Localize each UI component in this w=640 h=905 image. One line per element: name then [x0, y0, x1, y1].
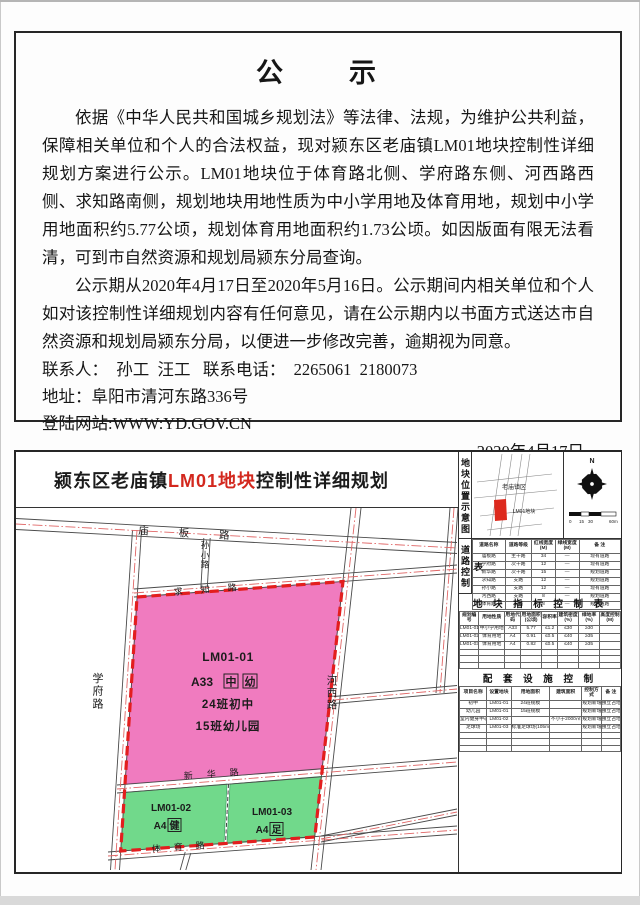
cell: 15班规模	[511, 708, 550, 716]
cell: 规划新增	[582, 716, 601, 724]
cell	[579, 662, 600, 669]
road-label-sunxiao: 孙小路	[201, 540, 210, 570]
cell	[600, 633, 621, 641]
cell: ≥35	[579, 641, 600, 649]
cell: 备 注	[579, 540, 620, 554]
cell: 用地代码	[505, 612, 521, 626]
cell: LM01-01	[460, 625, 479, 633]
cell	[600, 625, 621, 633]
compass-column: N 0 15 30	[563, 452, 621, 538]
cell: 红线宽度(M)	[532, 540, 556, 554]
scanned-notice-page: 公 示 依据《中华人民共和国城乡规划法》等法律、法规，为维护公共利益，保障相关单…	[0, 0, 640, 905]
cell	[558, 662, 579, 669]
scale-0: 0	[569, 519, 572, 524]
cell	[550, 700, 582, 708]
table-row: 庙板路主干路34—现有道路	[473, 553, 621, 561]
cell: 求知路	[473, 577, 506, 585]
road-control-section: 道路控制表 道路名称道路等级红线宽度(M)绿线宽度(M)备 注庙板路主干路34—…	[459, 539, 621, 594]
sidebar-empty-area	[459, 752, 621, 866]
cell: 12	[532, 561, 556, 569]
cell: 5.77	[521, 625, 542, 633]
cell: 0.91	[521, 633, 542, 641]
road-label-hexi: 河西路	[327, 675, 338, 711]
cell: ≤0.5	[542, 633, 558, 641]
cell: —	[555, 585, 579, 593]
cell	[542, 662, 558, 669]
cell: 规划新增	[582, 708, 601, 716]
location-inset-map: 老庙镇区 LM01地块	[472, 452, 563, 538]
parcel2-code: LM01-02	[151, 803, 191, 814]
notice-address-line: 地址：阜阳市清河东路336号	[42, 383, 594, 410]
cell: 12	[532, 585, 556, 593]
cell	[505, 662, 521, 669]
cell: 12	[532, 577, 556, 585]
parcel1-tag1: 中	[226, 675, 237, 689]
table-row: LM01-03体育用地A40.82≤0.5≤40≥35	[460, 641, 621, 649]
indicator-table-title: 地 块 指 标 控 制 表	[459, 594, 621, 611]
cell: 新华路	[473, 569, 506, 577]
cell	[601, 745, 620, 752]
cell	[487, 745, 511, 752]
cell: 中小学用地	[479, 625, 505, 633]
cell	[511, 716, 550, 724]
parcel1-line3: 24班初中	[202, 697, 254, 711]
cell: 初中	[460, 700, 487, 708]
cell: ≤1.2	[542, 625, 558, 633]
plan-sidebar: 地块位置示意图 老庙镇区 LM01地块	[458, 452, 621, 872]
cell: 幼儿园	[460, 708, 487, 716]
table-row: 室内健身中心LM01-02不小于2000㎡规划新增独立占地	[460, 716, 621, 724]
parcel3-tag: 足	[272, 824, 283, 836]
road-label-miaoban: 庙板路	[138, 524, 260, 544]
cell: 高度控制(M)	[600, 612, 621, 626]
table-row: LM01-02体育用地A40.91≤0.5≤40≥35	[460, 633, 621, 641]
page-edge-bottom	[0, 896, 640, 905]
cell: 现有道路	[579, 561, 620, 569]
cell: ≤40	[558, 633, 579, 641]
cell: —	[555, 577, 579, 585]
cell: 道路名称	[473, 540, 506, 554]
compass-svg: N 0 15 30	[564, 452, 621, 538]
cell: 绿地率(%)	[579, 612, 600, 626]
cell: 道路等级	[505, 540, 532, 554]
table-row: 足球场LM01-03标准足球场(105m×68m)规划新增独立占地	[460, 724, 621, 732]
scale-60: 60m	[609, 519, 618, 524]
cell: 用地面积(公顷)	[521, 612, 542, 626]
page-edge-top	[0, 0, 640, 2]
cell: A4	[505, 633, 521, 641]
cell: 室内健身中心	[460, 716, 487, 724]
scale-bar-icon: 0 15 30 60m	[569, 512, 618, 524]
parcel1-line4: 15班幼儿园	[196, 719, 261, 733]
plan-title-highlight: LM01地块	[168, 467, 256, 493]
parcel3-use-code: A4	[256, 825, 269, 836]
notice-paragraph-1: 依据《中华人民共和国城乡规划法》等法律、法规，为维护公共利益，保障相关单位和个人…	[42, 104, 594, 272]
cell	[460, 745, 487, 752]
plan-map-svg: 庙板路 孙小路 求知路 学府路 河西路 新华路 体育路 LM01-01 A33 …	[16, 508, 458, 872]
cell	[600, 662, 621, 669]
cell: 规划新增	[582, 724, 601, 732]
table-row: 幼儿园LM01-0115班规模规划新增独立占地	[460, 708, 621, 716]
cell: ≥30	[579, 625, 600, 633]
cell: —	[555, 569, 579, 577]
inset-town-label: 老庙镇区	[502, 483, 526, 491]
cell: 支路	[505, 577, 532, 585]
parcel2-use-code: A4	[154, 821, 167, 832]
table-row: LM01-01中小学用地A335.77≤1.2≤30≥30	[460, 625, 621, 633]
cell: ≤0.5	[542, 641, 558, 649]
notice-website-line: 登陆网站:WWW:YD.GOV.CN	[42, 410, 594, 437]
north-label: N	[589, 458, 594, 465]
cell: 规划新增	[582, 700, 601, 708]
cell: 体育用地	[479, 641, 505, 649]
cell: 独立占地	[601, 716, 620, 724]
cell: 24班规模	[511, 700, 550, 708]
indicator-table: 规划编号用地性质用地代码用地面积(公顷)容积率建筑密度(%)绿地率(%)高度控制…	[459, 611, 621, 669]
cell: 规划道路	[579, 569, 620, 577]
plan-title: 颍东区老庙镇LM01地块控制性详细规划	[16, 452, 458, 508]
facilities-table: 项目名称设置地块用地面积建筑面积控制方式备 注初中LM01-0124班规模规划新…	[459, 686, 621, 752]
parcel1-code: LM01-01	[202, 650, 254, 664]
notice-title: 公 示	[42, 51, 594, 90]
cell: 建筑密度(%)	[558, 612, 579, 626]
scale-30: 30	[588, 519, 594, 524]
inset-parcel-marker	[494, 499, 507, 521]
table-header-row: 项目名称设置地块用地面积建筑面积控制方式备 注	[460, 687, 621, 701]
cell: A33	[505, 625, 521, 633]
table-header-row: 道路名称道路等级红线宽度(M)绿线宽度(M)备 注	[473, 540, 621, 554]
parcel1-tag2: 幼	[245, 675, 256, 689]
parcel1-use-code: A33	[191, 675, 213, 689]
table-header-row: 规划编号用地性质用地代码用地面积(公顷)容积率建筑密度(%)绿地率(%)高度控制…	[460, 612, 621, 626]
cell: 用地面积	[511, 687, 550, 701]
compass-rose-icon	[577, 468, 607, 500]
cell: 学府路	[473, 561, 506, 569]
location-section-vlabel: 地块位置示意图	[459, 452, 472, 538]
cell	[550, 745, 582, 752]
cell: 备 注	[601, 687, 620, 701]
cell: 次干路	[505, 569, 532, 577]
cell: ≤40	[558, 641, 579, 649]
cell: 孙小路	[473, 585, 506, 593]
plan-title-suffix: 控制性详细规划	[256, 467, 389, 493]
table-row: 初中LM01-0124班规模规划新增独立占地	[460, 700, 621, 708]
plan-map: 庙板路 孙小路 求知路 学府路 河西路 新华路 体育路 LM01-01 A33 …	[16, 508, 458, 872]
table-row: 孙小路支路12—现有道路	[473, 585, 621, 593]
cell: 绿线宽度(M)	[555, 540, 579, 554]
parcel3-code: LM01-03	[252, 807, 292, 818]
plan-title-prefix: 颍东区老庙镇	[54, 467, 168, 493]
cell: 项目名称	[460, 687, 487, 701]
cell: —	[555, 561, 579, 569]
notice-paragraph-2: 公示期从2020年4月17日至2020年5月16日。公示期间内相关单位和个人如对…	[42, 272, 594, 356]
cell: ≥35	[579, 633, 600, 641]
table-row	[460, 662, 621, 669]
road-label-xuefu: 学府路	[93, 671, 104, 710]
cell: 不小于2000㎡	[550, 716, 582, 724]
cell: 现有道路	[579, 585, 620, 593]
cell: 规划编号	[460, 612, 479, 626]
cell: 标准足球场(105m×68m)	[511, 724, 550, 732]
cell: —	[555, 553, 579, 561]
cell: 支路	[505, 585, 532, 593]
cell: 建筑面积	[550, 687, 582, 701]
cell: 体育用地	[479, 633, 505, 641]
cell: LM01-03	[487, 724, 511, 732]
plan-box: 颍东区老庙镇LM01地块控制性详细规划	[14, 450, 622, 874]
table-row	[460, 745, 621, 752]
scale-15: 15	[579, 519, 585, 524]
facilities-table-title: 配 套 设 施 控 制	[459, 669, 621, 686]
cell: 独立占地	[601, 724, 620, 732]
cell: 次干路	[505, 561, 532, 569]
indicator-section: 地 块 指 标 控 制 表 规划编号用地性质用地代码用地面积(公顷)容积率建筑密…	[459, 594, 621, 669]
cell	[511, 745, 550, 752]
cell	[479, 662, 505, 669]
cell: 用地性质	[479, 612, 505, 626]
cell	[600, 641, 621, 649]
road-control-vlabel: 道路控制表	[459, 539, 472, 593]
inset-parcel-label: LM01地块	[513, 508, 536, 515]
cell: 34	[532, 553, 556, 561]
cell	[521, 662, 542, 669]
table-row: 学府路次干路12—现有道路	[473, 561, 621, 569]
cell: LM01-02	[460, 633, 479, 641]
location-inset-svg: 老庙镇区 LM01地块	[472, 452, 561, 538]
cell: 庙板路	[473, 553, 506, 561]
cell: LM01-01	[487, 700, 511, 708]
location-section: 地块位置示意图 老庙镇区 LM01地块	[459, 452, 621, 539]
cell: 规划道路	[579, 577, 620, 585]
cell: 控制方式	[582, 687, 601, 701]
cell	[550, 724, 582, 732]
cell: ≤30	[558, 625, 579, 633]
cell	[550, 708, 582, 716]
cell: 设置地块	[487, 687, 511, 701]
cell: 独立占地	[601, 700, 620, 708]
parcel2-tag: 健	[170, 819, 180, 832]
cell: LM01-02	[487, 716, 511, 724]
cell	[582, 745, 601, 752]
cell: A4	[505, 641, 521, 649]
cell: 15	[532, 569, 556, 577]
cell: LM01-03	[460, 641, 479, 649]
cell	[460, 662, 479, 669]
inset-street-grid	[474, 454, 557, 536]
facilities-section: 配 套 设 施 控 制 项目名称设置地块用地面积建筑面积控制方式备 注初中LM0…	[459, 669, 621, 752]
table-row: 新华路次干路15—规划道路	[473, 569, 621, 577]
cell: 独立占地	[601, 708, 620, 716]
cell: LM01-01	[487, 708, 511, 716]
cell: 足球场	[460, 724, 487, 732]
notice-contact-line: 联系人： 孙工 汪工 联系电话： 2265061 2180073	[42, 356, 594, 383]
cell: 0.82	[521, 641, 542, 649]
cell: 容积率	[542, 612, 558, 626]
cell: 主干路	[505, 553, 532, 561]
notice-box: 公 示 依据《中华人民共和国城乡规划法》等法律、法规，为维护公共利益，保障相关单…	[14, 31, 622, 422]
cell: 现有道路	[579, 553, 620, 561]
table-row: 求知路支路12—规划道路	[473, 577, 621, 585]
